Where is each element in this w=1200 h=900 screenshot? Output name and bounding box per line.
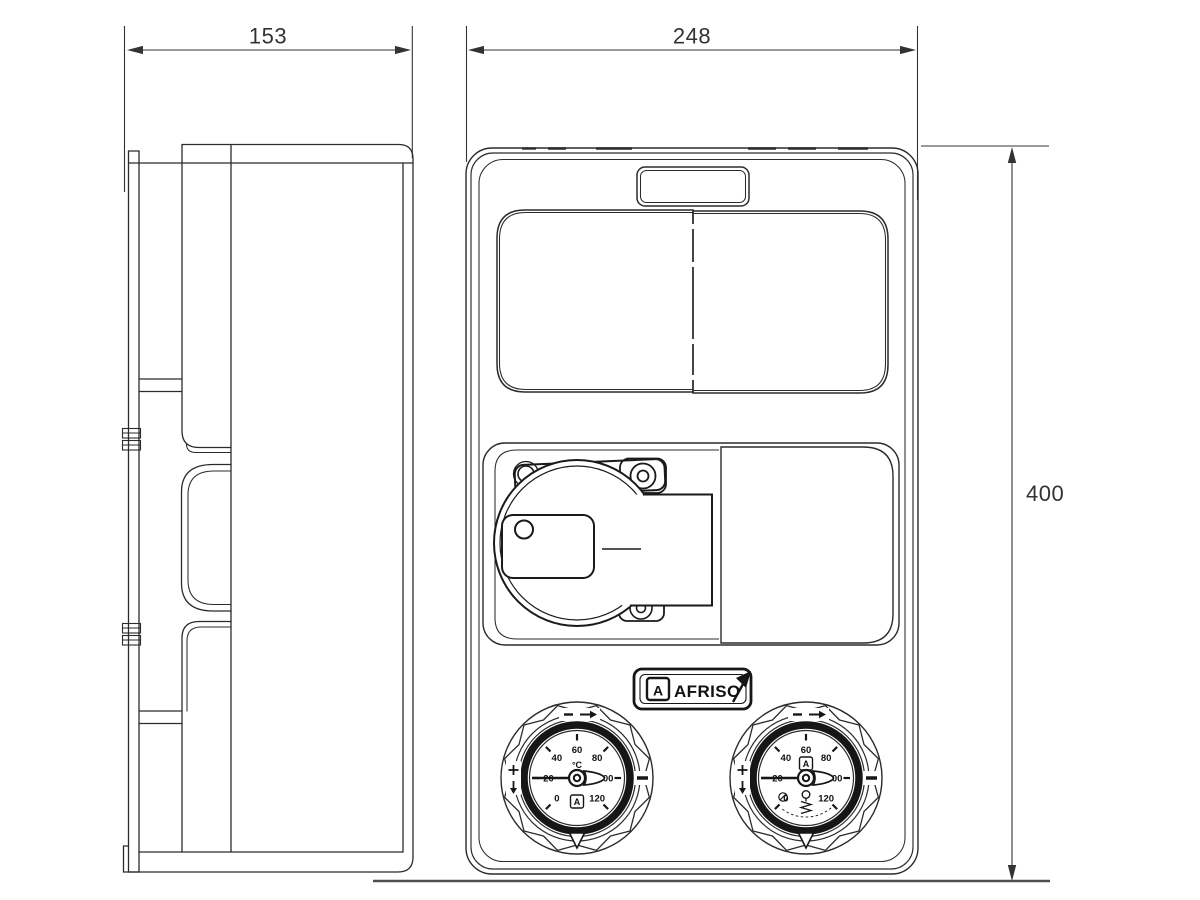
gauge-hub-center bbox=[803, 775, 809, 781]
dimension-248 bbox=[467, 26, 918, 200]
arrowhead bbox=[468, 46, 484, 54]
gauge-scale-label: 40 bbox=[552, 753, 563, 764]
gauge-scale-label: 120 bbox=[818, 793, 834, 804]
gauge-mark-letter: A bbox=[574, 797, 581, 807]
flange-bolt-right bbox=[638, 471, 649, 482]
gauge-scale-label: 0 bbox=[783, 793, 788, 804]
arrowhead bbox=[127, 46, 143, 54]
arrowhead bbox=[1008, 865, 1016, 881]
mounting-ribs bbox=[139, 379, 182, 724]
bottom-outer-edge bbox=[129, 857, 414, 872]
handle-recess bbox=[182, 465, 232, 612]
gauge-scale-label: 80 bbox=[821, 753, 832, 764]
dimension-153 bbox=[125, 26, 413, 192]
gauge-scale-label: 60 bbox=[801, 745, 812, 756]
technical-drawing-page: 153 248 400 bbox=[0, 0, 1200, 900]
gauge-scale-label: 0 bbox=[554, 793, 559, 804]
gauge-scale-label: 80 bbox=[592, 753, 603, 764]
dimension-label-height: 400 bbox=[1026, 481, 1064, 506]
pump-assembly bbox=[494, 459, 712, 627]
wall-plate bbox=[124, 151, 140, 872]
foot-step bbox=[124, 846, 129, 872]
dimension-label-width: 248 bbox=[673, 24, 711, 49]
recess-cover-panel bbox=[721, 447, 893, 643]
retaining-clips bbox=[123, 429, 141, 646]
gauge-scale-label: 120 bbox=[589, 793, 605, 804]
top-outer-edge bbox=[182, 145, 413, 160]
left-door bbox=[497, 210, 693, 392]
gauge-return-thermometer: 020406080100120A bbox=[730, 702, 882, 854]
dimension-label-depth: 153 bbox=[249, 24, 287, 49]
shell-back-lower-inner bbox=[187, 627, 231, 711]
shell-back-upper bbox=[182, 145, 231, 448]
brand-mark-letter: A bbox=[653, 683, 663, 699]
top-label-plate bbox=[637, 167, 749, 206]
arrowhead bbox=[1008, 147, 1016, 163]
dimension-400 bbox=[921, 146, 1049, 881]
gauge-hub-center bbox=[574, 775, 580, 781]
arrowhead bbox=[395, 46, 411, 54]
side-view bbox=[123, 145, 414, 873]
arrowhead bbox=[900, 46, 916, 54]
dimension-drawing: 153 248 400 bbox=[0, 0, 1200, 900]
right-door bbox=[693, 211, 888, 393]
pump-housing-fill bbox=[622, 495, 712, 606]
nameplate-knob bbox=[515, 521, 533, 539]
gauge-scale-label: 40 bbox=[781, 753, 792, 764]
gauge-mark-letter: A bbox=[803, 759, 810, 769]
shell-back-lower bbox=[182, 622, 231, 853]
gauge-scale-label: 60 bbox=[572, 745, 583, 756]
gauge-unit-label: °C bbox=[572, 760, 583, 770]
brand-name: AFRISO bbox=[674, 682, 741, 701]
gauge-supply-thermometer: 020406080100120°CA bbox=[501, 702, 653, 854]
shell-back-upper-inner bbox=[187, 444, 232, 453]
